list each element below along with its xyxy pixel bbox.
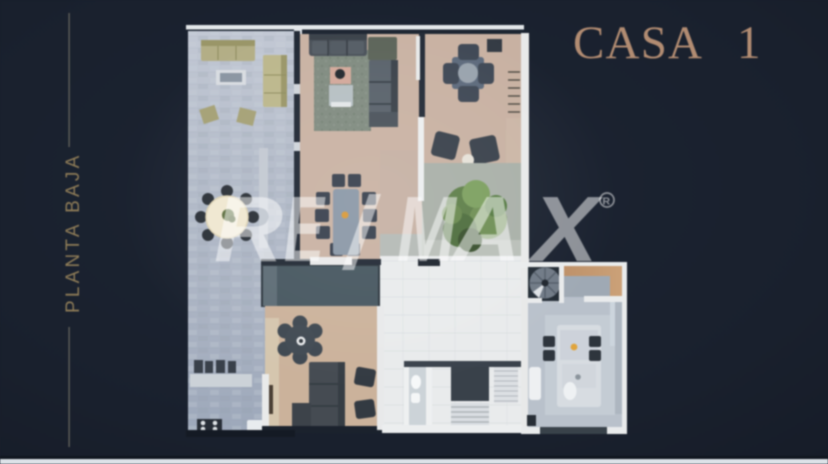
svg-text:PLANTA BAJA: PLANTA BAJA — [63, 153, 84, 314]
svg-text:CASA: CASA — [573, 17, 703, 69]
svg-text:1: 1 — [737, 17, 761, 69]
